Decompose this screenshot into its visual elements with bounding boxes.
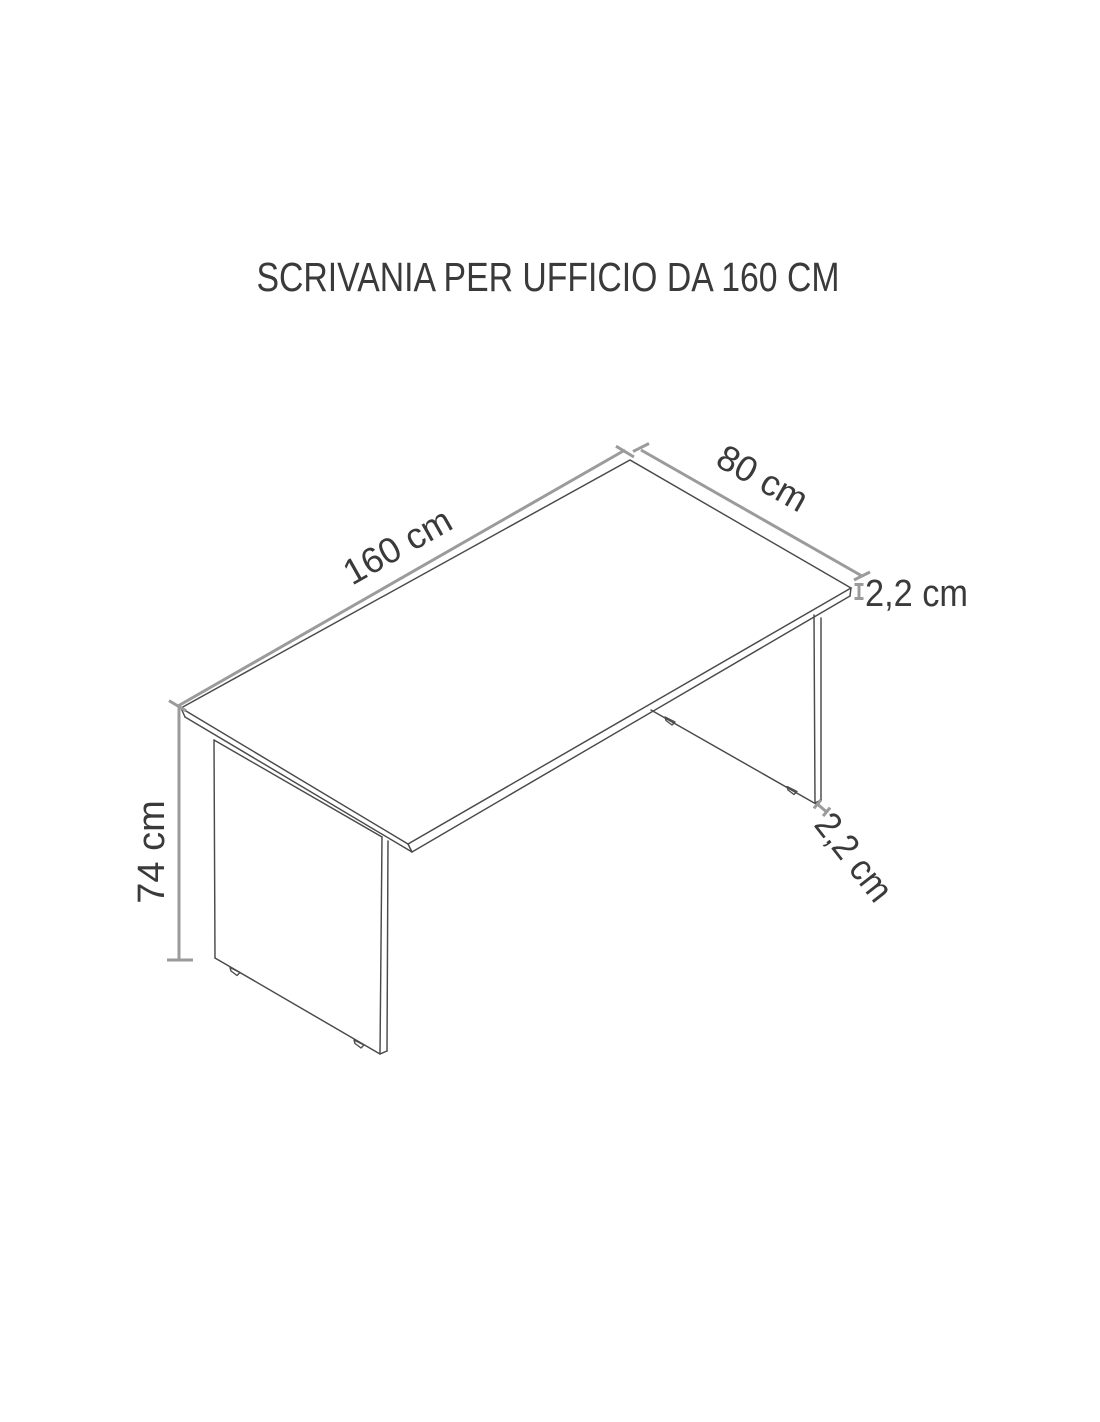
svg-text:SCRIVANIA PER UFFICIO DA 160 C: SCRIVANIA PER UFFICIO DA 160 CM (257, 254, 840, 300)
svg-text:74 cm: 74 cm (131, 800, 173, 903)
svg-text:2,2 cm: 2,2 cm (865, 573, 968, 615)
